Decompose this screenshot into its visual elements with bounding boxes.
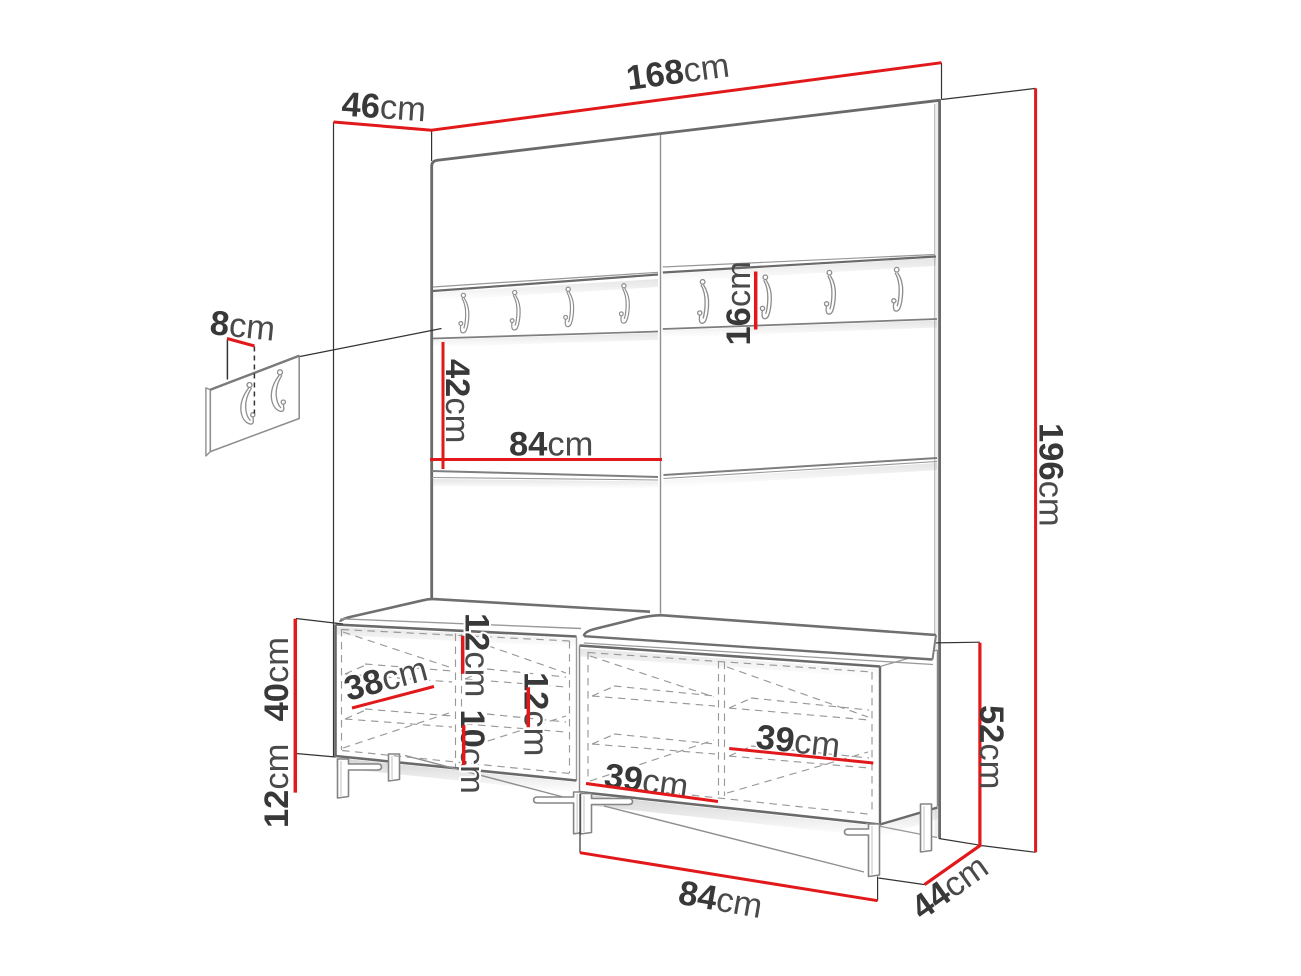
svg-text:16cm: 16cm: [720, 261, 758, 345]
svg-text:12cm: 12cm: [258, 744, 296, 828]
svg-text:52cm: 52cm: [972, 705, 1010, 789]
svg-text:12cm: 12cm: [517, 672, 555, 756]
svg-text:84cm: 84cm: [509, 426, 593, 464]
svg-text:40cm: 40cm: [258, 637, 296, 721]
svg-text:196cm: 196cm: [1032, 423, 1070, 527]
svg-text:46cm: 46cm: [340, 86, 427, 130]
svg-text:8cm: 8cm: [208, 304, 277, 349]
svg-text:42cm: 42cm: [438, 359, 476, 443]
svg-text:10cm: 10cm: [453, 710, 491, 794]
